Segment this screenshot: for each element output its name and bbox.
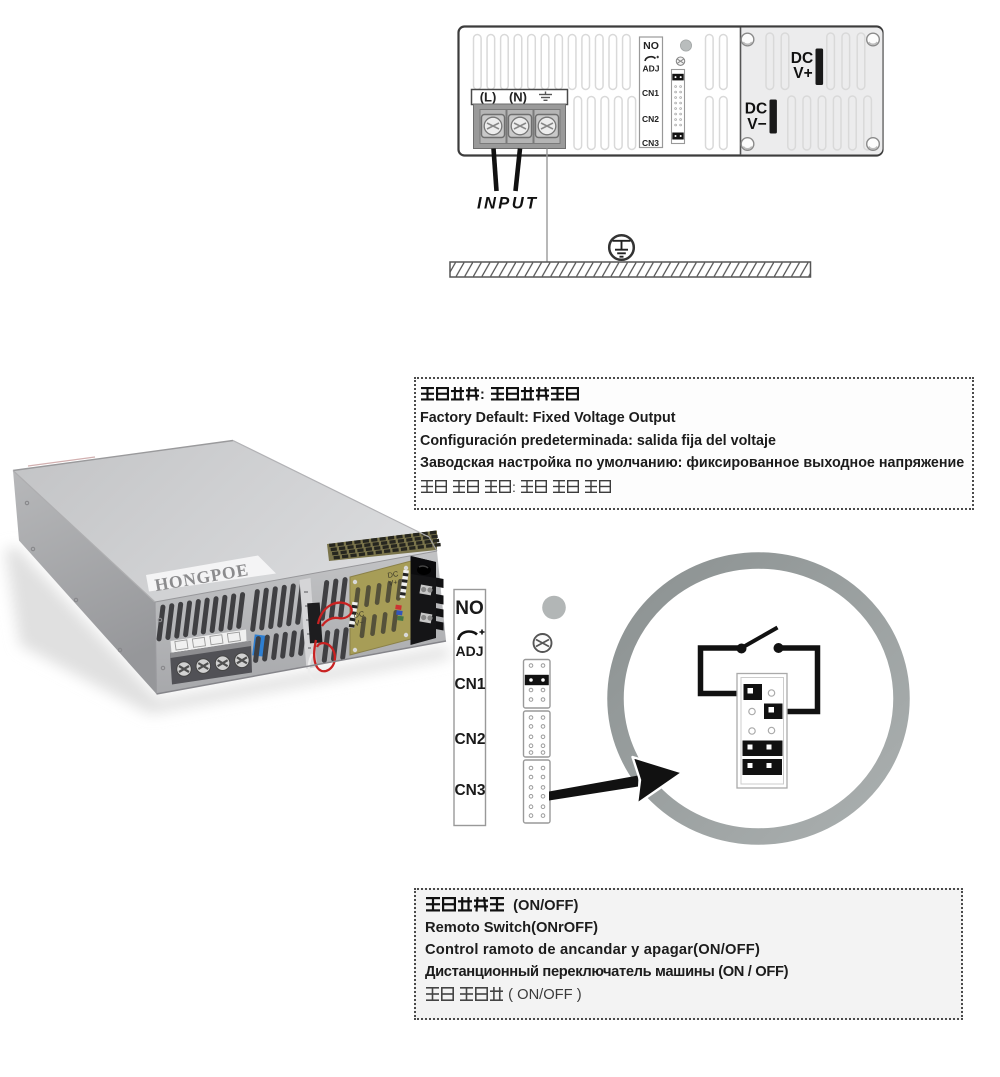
svg-text:(N): (N) bbox=[509, 90, 527, 105]
svg-text:NO: NO bbox=[643, 40, 659, 52]
svg-text:DC: DC bbox=[745, 101, 767, 118]
svg-text:CN2: CN2 bbox=[454, 731, 485, 748]
svg-text:V+: V+ bbox=[793, 65, 812, 82]
svg-text:NO: NO bbox=[455, 598, 484, 619]
svg-text:ADJ: ADJ bbox=[455, 643, 483, 659]
svg-text:V−: V− bbox=[747, 116, 766, 133]
svg-text:CN2: CN2 bbox=[642, 114, 659, 124]
svg-text:(L): (L) bbox=[480, 90, 497, 105]
svg-text:CN3: CN3 bbox=[642, 138, 659, 148]
svg-text:CN1: CN1 bbox=[642, 88, 659, 98]
svg-text:ADJ: ADJ bbox=[642, 64, 659, 74]
svg-text:INPUT: INPUT bbox=[477, 195, 539, 213]
svg-text:CN3: CN3 bbox=[454, 782, 485, 799]
svg-text:CN1: CN1 bbox=[454, 676, 485, 693]
